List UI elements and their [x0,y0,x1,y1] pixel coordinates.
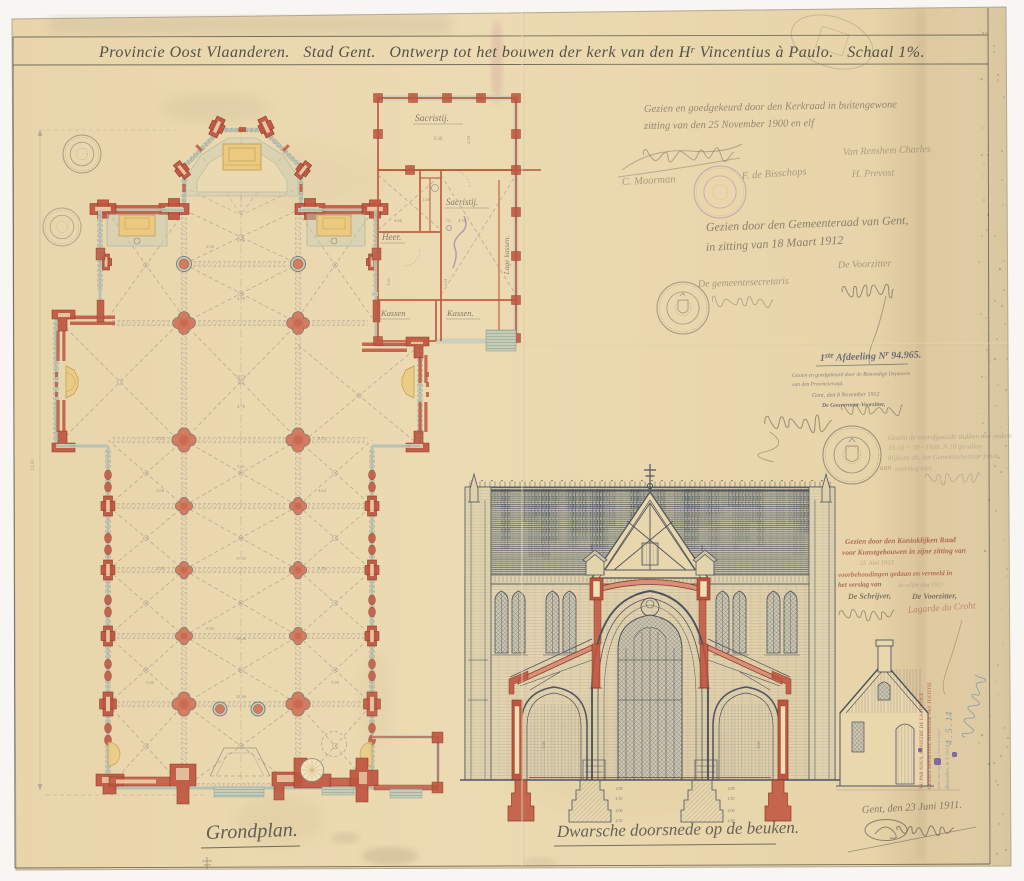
svg-text:5.00: 5.00 [756,742,761,749]
svg-text:5.72: 5.72 [156,436,165,441]
svg-text:Heer.: Heer. [381,232,401,242]
svg-text:5.72: 5.72 [318,436,327,441]
svg-text:4.50: 4.50 [466,135,471,144]
svg-text:overslag niet.: overslag niet. [895,464,933,473]
svg-text:15-10 = 10 - 1909. N 10 gevall: 15-10 = 10 - 1909. N 10 gevallen [888,442,982,452]
svg-text:5.80: 5.80 [206,626,215,631]
svg-text:4.70: 4.70 [237,404,246,409]
svg-text:3.55: 3.55 [386,278,391,285]
svg-text:4.70: 4.70 [237,296,246,301]
svg-text:VU PAR NOUS, MINISTRE DE LA JU: VU PAR NOUS, MINISTRE DE LA JUSTICE [920,692,925,789]
svg-text:De Voorzitter: De Voorzitter [837,258,892,271]
svg-text:4 . 5 . 14: 4 . 5 . 14 [945,712,955,746]
svg-text:12.50: 12.50 [31,459,36,471]
svg-text:5.76: 5.76 [156,566,165,571]
svg-text:5.61: 5.61 [443,278,448,285]
svg-text:1.40: 1.40 [422,197,429,202]
svg-text:5.76: 5.76 [318,566,327,571]
svg-text:5.80: 5.80 [331,680,340,685]
svg-text:het verslag van: het verslag van [838,580,882,589]
svg-text:25 Juni 1913: 25 Juni 1913 [860,559,895,567]
svg-text:1.08: 1.08 [728,786,735,791]
svg-text:17.25: 17.25 [236,556,247,561]
svg-text:Bruxelles, le 3 1914: Bruxelles, le 3 1914 [944,745,951,789]
svg-text:De Schrijver,: De Schrijver, [847,591,891,601]
svg-text:De Voorzitter,: De Voorzitter, [911,591,957,601]
svg-text:GEZIEN DOOR ONS, MINISTER VAN: GEZIEN DOOR ONS, MINISTER VAN JUSTITIE [928,681,933,789]
svg-text:18.26: 18.26 [236,636,247,641]
svg-text:Sacristij.: Sacristij. [446,197,478,207]
svg-text:4.66: 4.66 [156,488,165,493]
svg-text:5.80: 5.80 [146,680,155,685]
svg-text:5.00: 5.00 [541,742,546,749]
svg-text:Gent, den 8 November 1912: Gent, den 8 November 1912 [812,392,880,399]
svg-text:Kassen: Kassen [380,308,406,318]
svg-text:Grondplan.: Grondplan. [205,819,298,844]
svg-text:de zelfde dag 1913: de zelfde dag 1913 [898,581,943,589]
svg-text:4.64: 4.64 [318,488,327,493]
svg-text:2.00: 2.00 [728,808,735,813]
svg-text:aan: aan [880,463,892,472]
svg-text:Kassen.: Kassen. [446,308,474,318]
svg-text:4.66: 4.66 [394,218,403,223]
svg-text:2.00: 2.00 [616,808,623,813]
svg-text:van den Provincieraad.: van den Provincieraad. [792,381,844,388]
svg-text:1.55: 1.55 [616,796,623,801]
svg-text:Sacristij.: Sacristij. [415,114,449,124]
svg-text:5.41: 5.41 [237,464,246,469]
svg-text:3.06: 3.06 [206,244,215,249]
svg-text:H. Prevost: H. Prevost [851,168,895,181]
svg-text:5.06: 5.06 [237,238,246,243]
svg-text:7.0: 7.0 [446,218,451,223]
svg-text:7.5: 7.5 [297,626,303,631]
svg-text:1.55: 1.55 [728,796,735,801]
svg-text:Lage kassen.: Lage kassen. [502,236,511,276]
svg-text:24.66: 24.66 [236,694,247,699]
svg-text:12.74: 12.74 [236,374,247,379]
svg-text:1.08: 1.08 [616,786,623,791]
svg-text:9.30: 9.30 [434,137,443,142]
